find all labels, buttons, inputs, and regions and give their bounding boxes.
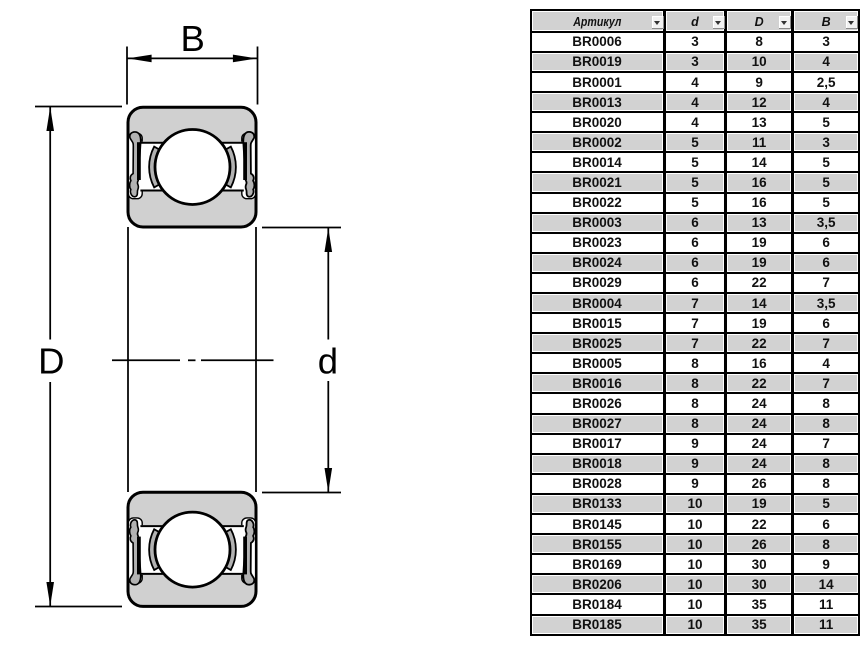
- svg-text:D: D: [38, 341, 64, 382]
- svg-text:d: d: [318, 341, 338, 382]
- svg-text:B: B: [181, 18, 205, 59]
